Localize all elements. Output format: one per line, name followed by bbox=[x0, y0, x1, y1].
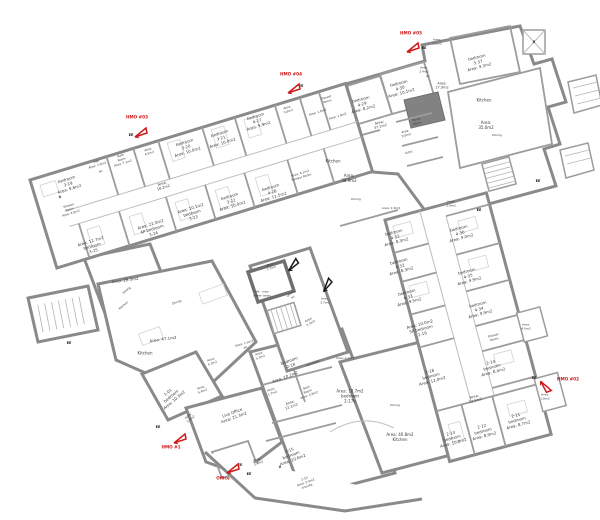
exit-label: EE bbox=[67, 341, 72, 345]
exit-label: EE bbox=[156, 425, 161, 429]
hmo-05-marker-label: HMO #05 bbox=[400, 31, 422, 36]
wing-top-left bbox=[30, 84, 372, 268]
hmo-04-marker-icon bbox=[286, 80, 302, 99]
office-marker-label: Office bbox=[216, 476, 230, 481]
floorplan-walls-drawing bbox=[0, 0, 600, 520]
exit-label: EE bbox=[247, 472, 252, 476]
exit-label: EE bbox=[422, 46, 427, 50]
exit-label: EE bbox=[536, 179, 541, 183]
stairwell-left bbox=[28, 286, 98, 342]
hmo-05-marker-icon bbox=[405, 39, 421, 58]
hmo-02-marker-icon bbox=[534, 377, 555, 396]
hmo-03-marker-icon bbox=[133, 124, 149, 143]
outbuilding-top-right bbox=[523, 30, 545, 54]
roof-hatch-right-2 bbox=[560, 143, 594, 178]
roof-hatch-right-1 bbox=[568, 75, 600, 113]
floor-plan: bedroom 3-19 Area: 9.6m2BHall Area: 2.6m… bbox=[0, 0, 600, 520]
hmo-03-marker-label: HMO #03 bbox=[126, 115, 148, 120]
hmo-02-marker-label: HMO #02 bbox=[557, 377, 579, 382]
exit-label: EE bbox=[477, 208, 482, 212]
hmo-1-marker-label: HMO #1 bbox=[161, 445, 180, 450]
hmo-04-marker-label: HMO #04 bbox=[280, 72, 302, 77]
